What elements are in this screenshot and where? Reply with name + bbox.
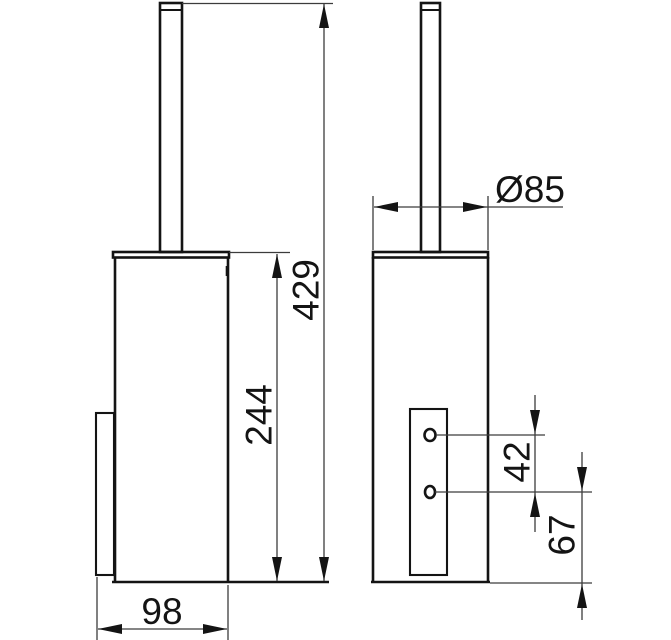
drawing-canvas: 429 244 98 Ø85 42	[0, 0, 671, 640]
arrow-right-icon	[463, 202, 487, 212]
front-wall-plate	[96, 413, 114, 575]
dim-label-overall-height: 429	[286, 259, 327, 321]
dimension-hole-spacing: 42	[435, 395, 592, 532]
dimension-depth: 98	[97, 577, 228, 640]
arrow-up-icon	[530, 493, 540, 517]
arrow-right-icon	[203, 624, 227, 634]
dim-label-diameter: Ø85	[495, 169, 565, 210]
arrow-down-icon	[577, 467, 587, 491]
front-lid	[113, 252, 229, 258]
arrow-up-icon	[272, 254, 282, 278]
arrow-down-icon	[272, 557, 282, 581]
dim-label-container-height: 244	[239, 384, 280, 446]
technical-drawing: 429 244 98 Ø85 42	[0, 0, 671, 640]
arrow-up-icon	[577, 584, 587, 608]
dimension-diameter: Ø85	[373, 169, 565, 250]
dimension-container-height: 244	[229, 253, 290, 582]
dim-label-hole-to-bottom: 67	[542, 514, 583, 555]
side-view	[371, 3, 490, 582]
lower-mount-hole	[425, 486, 435, 498]
arrow-down-icon	[319, 557, 329, 581]
arrow-left-icon	[374, 202, 398, 212]
upper-mount-hole	[425, 429, 436, 441]
arrow-down-icon	[530, 410, 540, 434]
side-brush-handle	[421, 3, 440, 252]
dimension-overall-height: 429	[182, 4, 333, 582]
side-lid	[373, 252, 488, 258]
front-brush-handle	[160, 3, 182, 252]
arrow-up-icon	[319, 4, 329, 28]
dim-label-hole-spacing: 42	[497, 441, 538, 482]
dim-label-depth: 98	[141, 591, 182, 632]
arrow-left-icon	[98, 624, 122, 634]
